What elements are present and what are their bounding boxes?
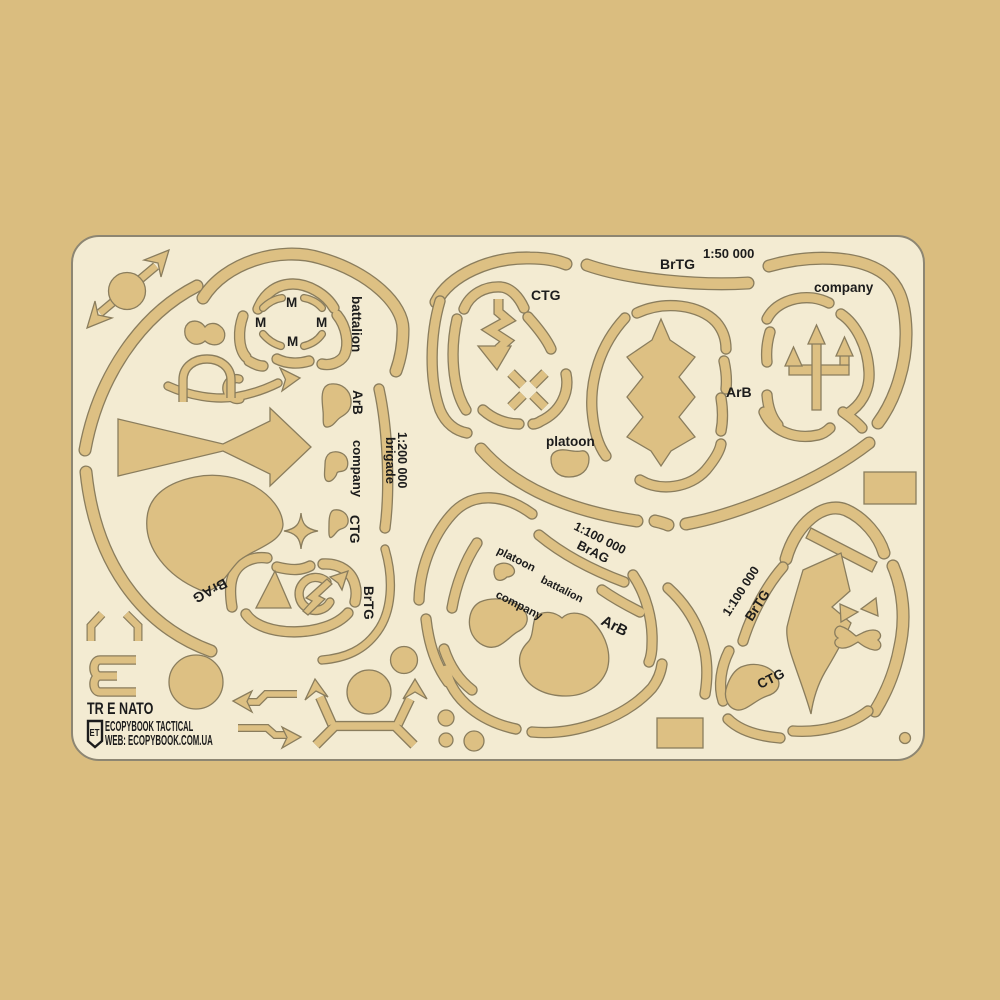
svg-text:platoon: platoon — [546, 434, 595, 449]
svg-text:battalion: battalion — [349, 296, 364, 352]
svg-text:company: company — [350, 440, 365, 498]
svg-text:M: M — [287, 334, 298, 349]
svg-text:M: M — [255, 315, 266, 330]
svg-text:M: M — [316, 315, 327, 330]
svg-text:ArB: ArB — [350, 390, 365, 415]
svg-text:company: company — [814, 280, 874, 295]
svg-text:CTG: CTG — [347, 515, 362, 544]
svg-text:ET: ET — [90, 727, 100, 738]
svg-text:M: M — [286, 295, 297, 310]
svg-text:BrTG: BrTG — [660, 256, 695, 272]
svg-text:CTG: CTG — [531, 287, 561, 303]
svg-text:ArB: ArB — [726, 384, 752, 400]
svg-text:1:50 000: 1:50 000 — [703, 246, 754, 261]
svg-text:brigade: brigade — [383, 437, 398, 484]
svg-text:WEB: ECOPYBOOK.COM.UA: WEB: ECOPYBOOK.COM.UA — [105, 733, 213, 749]
svg-text:BrTG: BrTG — [361, 586, 376, 620]
svg-text:TR E NATO: TR E NATO — [87, 700, 153, 718]
